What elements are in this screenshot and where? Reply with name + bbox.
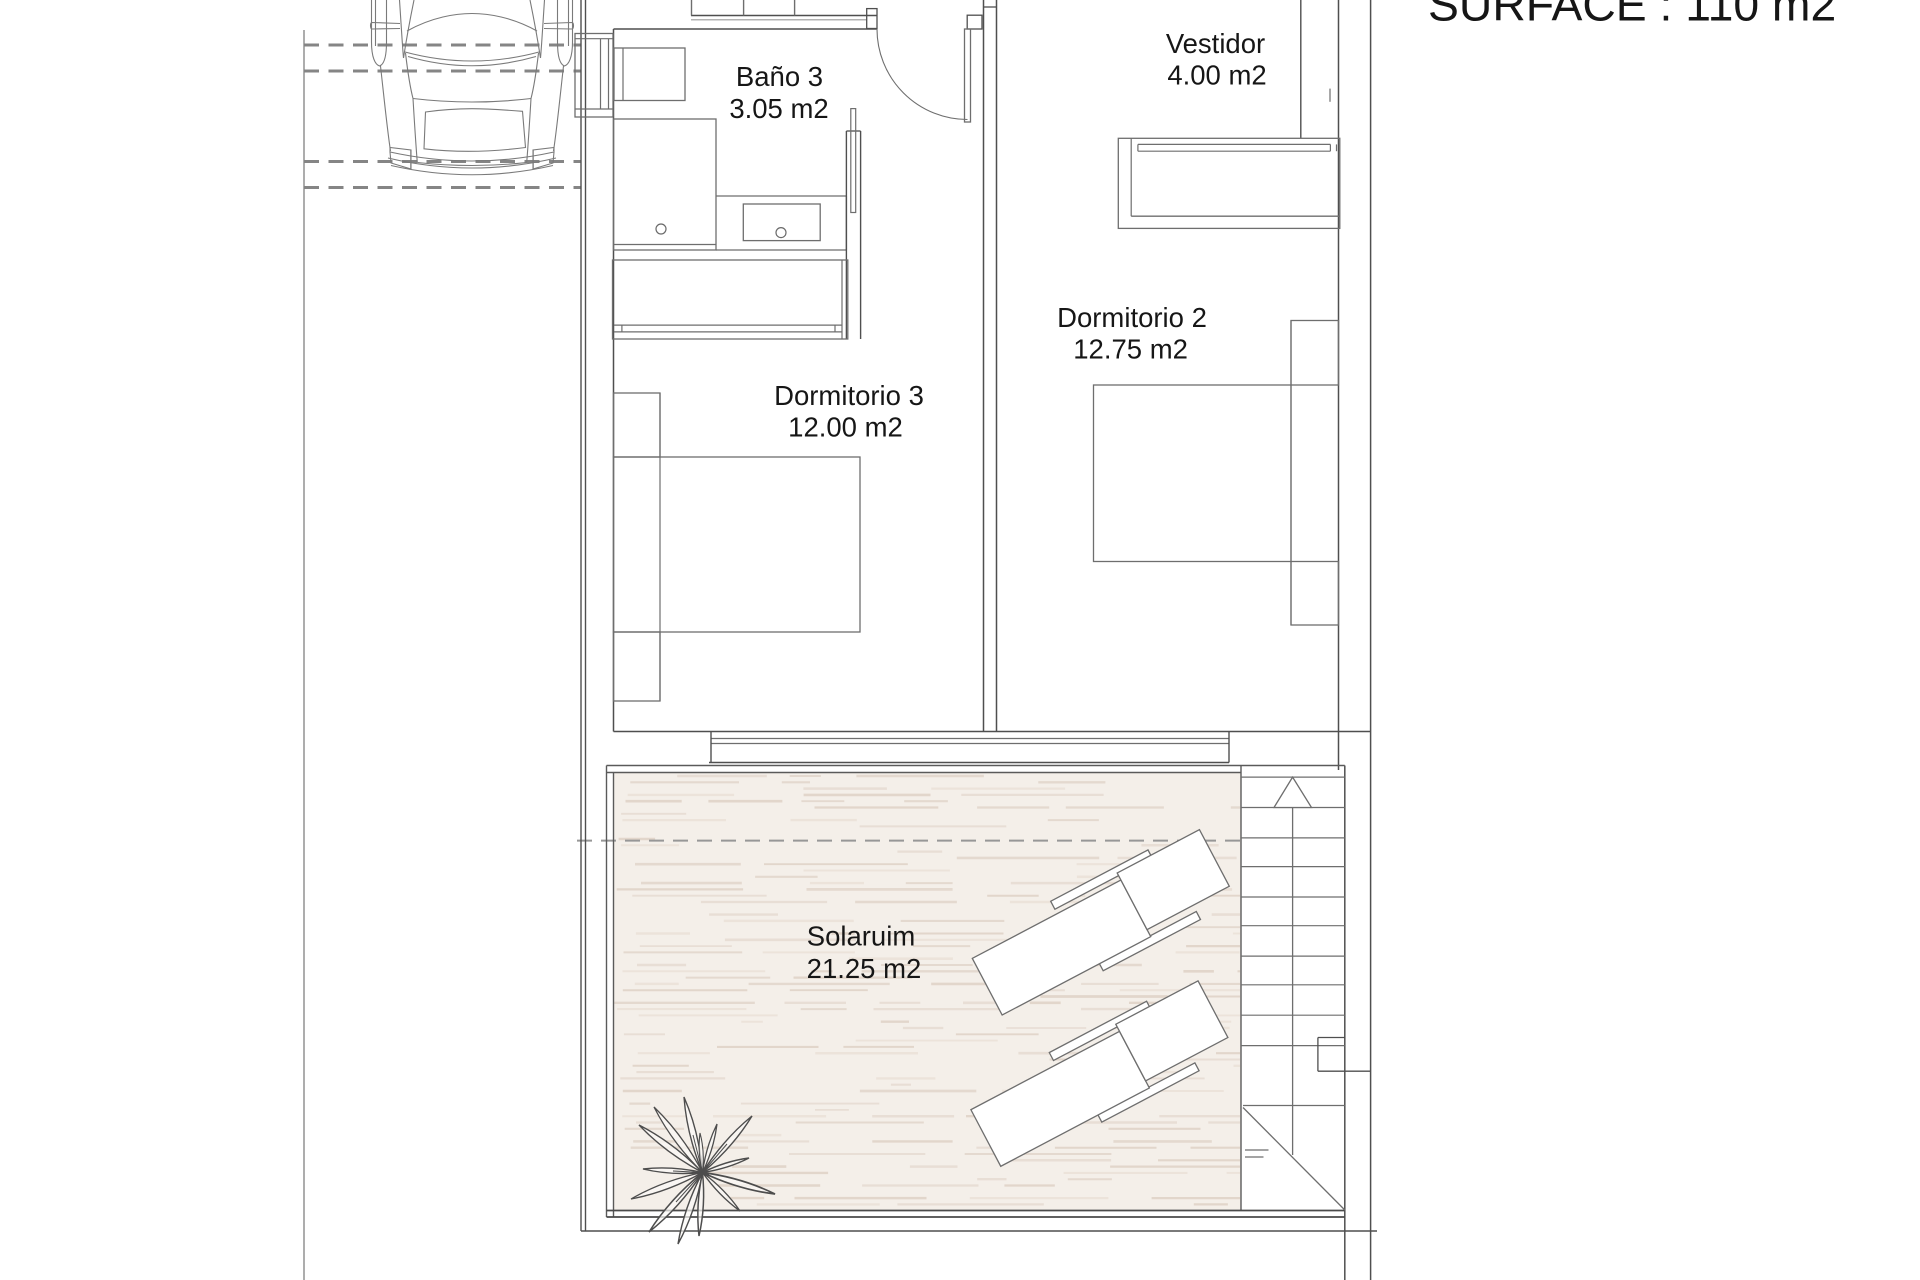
svg-text:Baño 3: Baño 3: [736, 61, 823, 92]
svg-text:12.75 m2: 12.75 m2: [1073, 333, 1188, 364]
svg-text:3.05 m2: 3.05 m2: [729, 93, 828, 124]
svg-text:21.25 m2: 21.25 m2: [807, 953, 922, 984]
svg-text:4.00 m2: 4.00 m2: [1167, 60, 1266, 91]
svg-text:SURFACE : 110 m2: SURFACE : 110 m2: [1428, 0, 1836, 30]
svg-text:Dormitorio 3: Dormitorio 3: [774, 380, 924, 411]
svg-text:Dormitorio 2: Dormitorio 2: [1057, 302, 1207, 333]
svg-text:Vestidor: Vestidor: [1166, 28, 1265, 59]
svg-text:Solaruim: Solaruim: [807, 921, 916, 952]
svg-text:12.00 m2: 12.00 m2: [788, 412, 903, 443]
